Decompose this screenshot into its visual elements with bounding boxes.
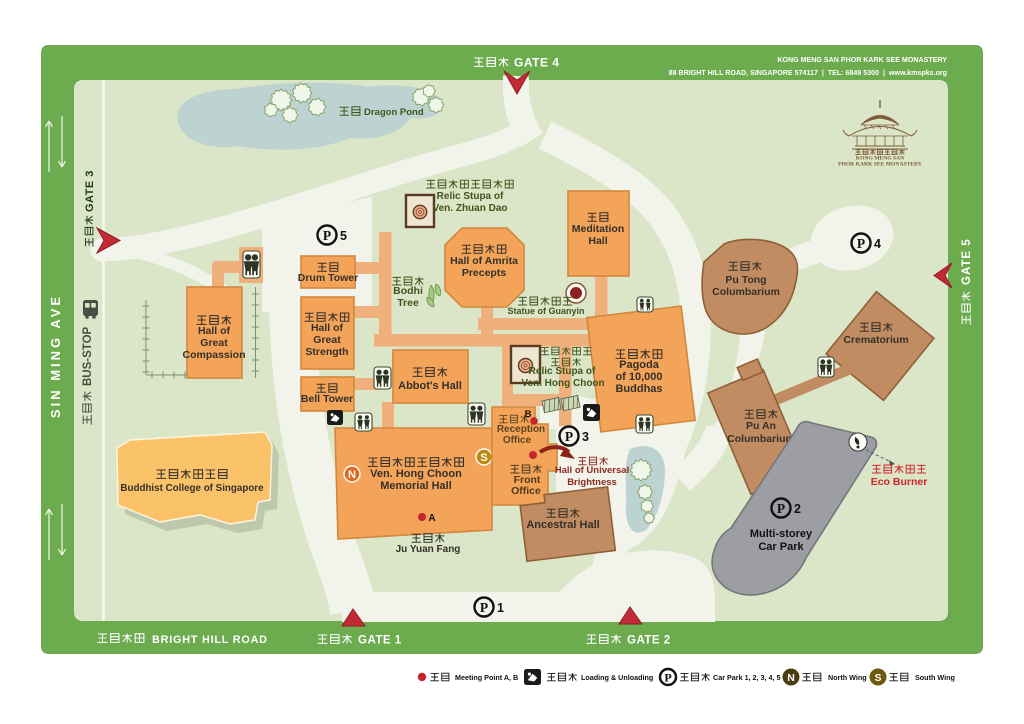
svg-text:PHOR KARK SEE MONASTERY: PHOR KARK SEE MONASTERY xyxy=(838,162,922,168)
svg-text:Pu An: Pu An xyxy=(746,420,776,432)
svg-text:Columbarium: Columbarium xyxy=(727,433,795,445)
svg-text:Hall of: Hall of xyxy=(311,322,344,334)
svg-text:3: 3 xyxy=(582,430,589,444)
svg-text:Ancestral Hall: Ancestral Hall xyxy=(526,519,599,531)
svg-text:Tree: Tree xyxy=(397,297,419,309)
svg-text:P: P xyxy=(857,236,865,251)
svg-text:Hall of: Hall of xyxy=(198,325,231,337)
svg-text:Strength: Strength xyxy=(305,346,348,358)
svg-text:North Wing: North Wing xyxy=(828,673,867,682)
svg-text:BUS-STOP: BUS-STOP xyxy=(82,326,94,386)
svg-text:Memorial Hall: Memorial Hall xyxy=(380,480,452,492)
svg-text:P: P xyxy=(480,600,488,615)
svg-text:GATE 1: GATE 1 xyxy=(358,635,402,647)
svg-text:N: N xyxy=(787,672,795,684)
svg-text:P: P xyxy=(777,501,785,516)
svg-text:GATE 5: GATE 5 xyxy=(961,238,973,285)
svg-text:Great: Great xyxy=(313,334,341,346)
svg-text:Car Park 1, 2, 3, 4, 5: Car Park 1, 2, 3, 4, 5 xyxy=(713,673,781,682)
svg-text:P: P xyxy=(664,670,671,684)
svg-text:Ven. Hong Choon: Ven. Hong Choon xyxy=(370,468,462,480)
svg-text:B: B xyxy=(525,409,532,420)
svg-text:Meeting Point A, B: Meeting Point A, B xyxy=(455,673,518,682)
svg-text:Precepts: Precepts xyxy=(462,267,507,279)
svg-text:Crematorium: Crematorium xyxy=(843,334,908,346)
svg-text:Dragon Pond: Dragon Pond xyxy=(364,107,424,118)
svg-text:Great: Great xyxy=(200,337,228,349)
svg-text:Buddhas: Buddhas xyxy=(615,383,662,395)
svg-text:Bodhi: Bodhi xyxy=(393,285,423,297)
svg-text:A: A xyxy=(428,513,435,524)
svg-text:KONG MENG SAN PHOR KARK SEE MO: KONG MENG SAN PHOR KARK SEE MONASTERY xyxy=(777,56,947,64)
svg-text:P: P xyxy=(323,228,331,243)
svg-text:Brightness: Brightness xyxy=(567,477,617,488)
svg-text:Bell Tower: Bell Tower xyxy=(301,393,353,405)
svg-text:Ven. Hong Choon: Ven. Hong Choon xyxy=(521,378,604,389)
svg-text:Relic Stupa of: Relic Stupa of xyxy=(529,366,596,377)
svg-text:Car Park: Car Park xyxy=(758,541,804,553)
svg-text:South Wing: South Wing xyxy=(915,673,955,682)
svg-text:SIN MING AVE: SIN MING AVE xyxy=(48,294,63,418)
svg-text:Office: Office xyxy=(503,435,532,446)
svg-text:2: 2 xyxy=(794,502,801,516)
svg-text:Pu Tong: Pu Tong xyxy=(725,274,766,286)
svg-text:Hall of Amrita: Hall of Amrita xyxy=(450,255,518,267)
svg-text:Drum Tower: Drum Tower xyxy=(298,272,358,284)
svg-text:N: N xyxy=(348,469,356,481)
svg-text:Ju Yuan Fang: Ju Yuan Fang xyxy=(396,544,461,555)
svg-text:Reception: Reception xyxy=(497,424,545,435)
svg-text:S: S xyxy=(874,672,881,684)
svg-text:GATE 2: GATE 2 xyxy=(627,635,671,647)
svg-text:Abbot's Hall: Abbot's Hall xyxy=(398,380,462,392)
svg-text:Compassion: Compassion xyxy=(182,349,245,361)
svg-text:Hall of Universal: Hall of Universal xyxy=(555,465,629,476)
svg-text:Multi-storey: Multi-storey xyxy=(750,528,813,540)
svg-text:Eco Burner: Eco Burner xyxy=(871,476,928,488)
svg-text:GATE 4: GATE 4 xyxy=(514,56,559,70)
svg-text:Ven. Zhuan Dao: Ven. Zhuan Dao xyxy=(432,203,507,214)
svg-text:Relic Stupa of: Relic Stupa of xyxy=(437,191,504,202)
svg-text:Meditation: Meditation xyxy=(572,223,625,235)
svg-text:Statue of Guanyin: Statue of Guanyin xyxy=(507,306,584,316)
svg-text:P: P xyxy=(565,429,573,444)
svg-text:Pagoda: Pagoda xyxy=(619,359,660,371)
svg-text:4: 4 xyxy=(874,237,881,251)
svg-text:5: 5 xyxy=(340,229,347,243)
svg-text:Loading & Unloading: Loading & Unloading xyxy=(581,673,653,682)
svg-text:Hall: Hall xyxy=(588,235,607,247)
svg-text:1: 1 xyxy=(497,601,504,615)
svg-text:GATE 3: GATE 3 xyxy=(84,170,96,212)
svg-text:S: S xyxy=(480,452,487,464)
svg-text:BRIGHT HILL ROAD: BRIGHT HILL ROAD xyxy=(152,634,268,646)
svg-text:Office: Office xyxy=(511,485,541,497)
svg-text:Buddhist College of Singapore: Buddhist College of Singapore xyxy=(120,483,264,494)
svg-text:88 BRIGHT HILL ROAD, SINGAPORE: 88 BRIGHT HILL ROAD, SINGAPORE 574117 | … xyxy=(669,69,947,77)
svg-text:of 10,000: of 10,000 xyxy=(615,371,662,383)
svg-text:Columbarium: Columbarium xyxy=(712,286,780,298)
